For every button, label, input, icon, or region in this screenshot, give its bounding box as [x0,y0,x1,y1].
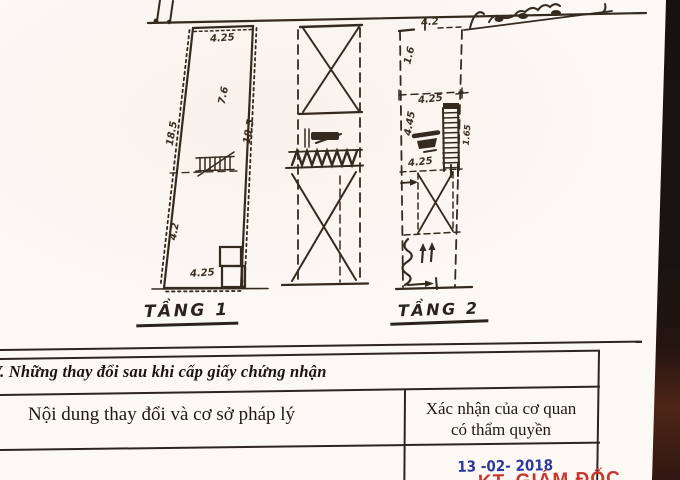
dim-floor2-top: 4.2 [421,16,440,29]
scanned-certificate-page: 4.25 7.6 18.5 4.2 18.5 4.25 4.2 1.6 4.25… [0,0,680,480]
floor-void-section [282,25,368,285]
dim-floor1-top: 4.25 [210,32,235,45]
dim-floor2-stair: 1.65 [462,124,474,146]
floor2-wc-block [414,133,438,153]
floor1-stair-icon [196,152,234,176]
col2-header-line2: có thẩm quyền [451,420,551,439]
floor1-plan [152,26,268,292]
col2-header-bottom-border [404,442,600,446]
floor2-stair-icon [443,103,459,171]
col2-header: Xác nhận của cơ quan có thẩm quyền [405,398,597,440]
dim-floor1-bottom: 4.25 [190,267,215,280]
section-title: V. Những thay đổi sau khi cấp giấy chứng… [0,362,327,382]
floor1-wc-block [220,247,245,287]
col2-header-line1: Xác nhận của cơ quan [426,399,577,418]
floor1-label: TẦNG 1 [136,300,238,328]
table-top-border [0,350,600,360]
col1-header: Nội dung thay đổi và cơ sở pháp lý [28,404,295,426]
table-column-divider [403,390,406,480]
table-row-border [0,386,600,396]
street-line [148,0,646,24]
floor-plans-drawing [0,0,680,345]
floor2-label: TẦNG 2 [390,298,488,325]
handwritten-note-floor2 [403,239,412,285]
table-right-border [596,351,600,480]
col1-header-bottom-border [0,444,404,451]
